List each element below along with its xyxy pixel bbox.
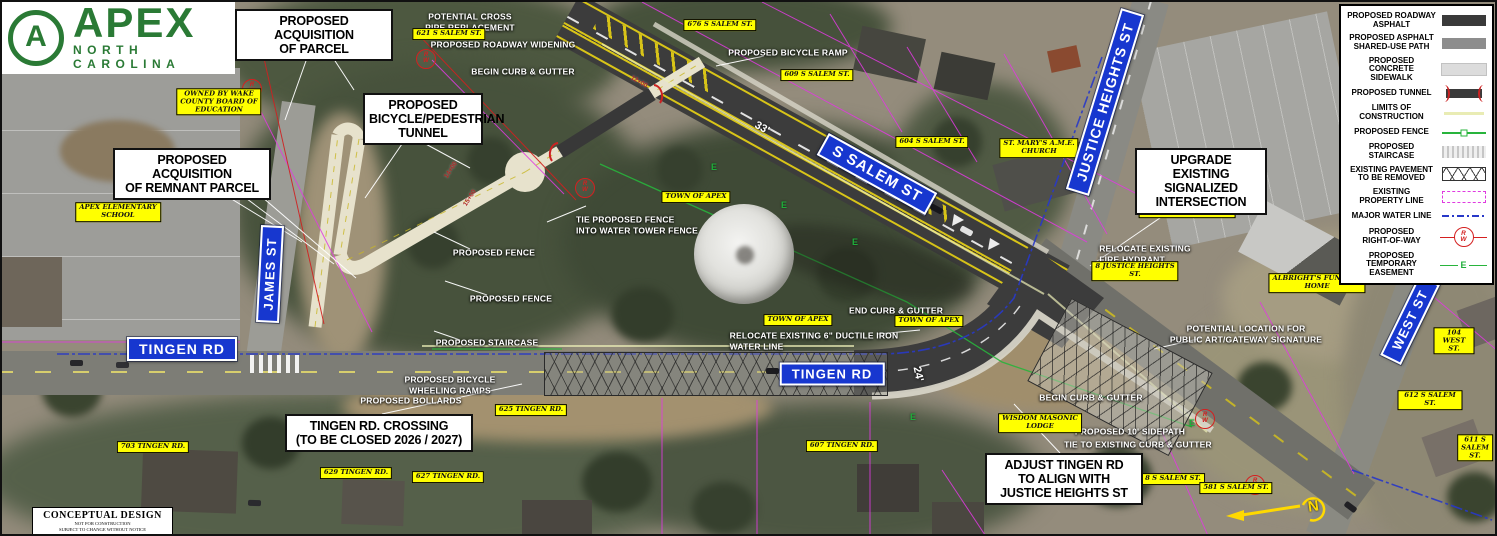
map-linework	[560, 94, 652, 152]
legend-swatch-limits-of-construction-icon	[1440, 107, 1487, 119]
callout-acquisition-of-parcel: PROPOSED ACQUISITION OF PARCEL	[235, 9, 393, 61]
street-sign-tingen-rd-west: TINGEN RD	[127, 337, 237, 361]
car	[248, 500, 261, 506]
legend-label: MAJOR WATER LINE	[1346, 212, 1437, 221]
logo-subtitle: NORTH CAROLINA	[73, 43, 229, 71]
legend-swatch-temporary-easement-icon: E	[1440, 258, 1487, 272]
map-linework	[1242, 506, 1300, 515]
callout-upgrade-signalized-intersection: UPGRADE EXISTING SIGNALIZED INTERSECTION	[1135, 148, 1267, 215]
legend-label: PROPOSED ASPHALT SHARED-USE PATH	[1346, 34, 1437, 52]
parcel-label: 8 JUSTICE HEIGHTS ST.	[1091, 261, 1178, 281]
callout-bicycle-pedestrian-tunnel: PROPOSED BICYCLE/PEDESTRIAN TUNNEL	[363, 93, 483, 145]
legend-item-concrete-sidewalk: PROPOSED CONCRETE SIDEWALK	[1346, 57, 1487, 83]
legend-swatch-concrete-sidewalk-icon	[1440, 63, 1487, 76]
note-label: BEGIN CURB & GUTTER	[1039, 393, 1142, 404]
callout-acquisition-of-remnant-parcel: PROPOSED ACQUISITION OF REMNANT PARCEL	[113, 148, 271, 200]
parcel-label: 8 S SALEM ST.	[1141, 473, 1205, 485]
legend-label: PROPOSED TUNNEL	[1346, 89, 1437, 98]
legend-swatch-right-of-way-icon: RW	[1440, 227, 1487, 247]
legend-item-roadway-asphalt: PROPOSED ROADWAY ASPHALT	[1346, 12, 1487, 30]
car	[70, 360, 83, 366]
note-label: PROPOSED FENCE	[453, 248, 535, 259]
parcel-label: TOWN OF APEX	[661, 191, 730, 203]
legend-swatch-tunnel-icon	[1440, 88, 1487, 100]
right-of-way-symbol: RW	[575, 178, 595, 198]
parcel-label: 611 S SALEM ST.	[1457, 434, 1493, 461]
note-label: PROPOSED BOLLARDS	[360, 396, 461, 407]
map-canvas: A APEX NORTH CAROLINA PROPOSED ROADWAY A…	[0, 0, 1497, 536]
parcel-label: 625 TINGEN RD.	[495, 404, 567, 416]
legend-item-water-line: MAJOR WATER LINE	[1346, 210, 1487, 222]
legend-label: PROPOSED STAIRCASE	[1346, 143, 1437, 161]
note-label: TIE PROPOSED FENCE INTO WATER TOWER FENC…	[576, 214, 698, 235]
legend-item-fence: PROPOSED FENCE	[1346, 127, 1487, 139]
note-label: PROPOSED ROADWAY WIDENING	[431, 40, 576, 51]
car	[766, 368, 779, 374]
parcel-label: WISDOM MASONIC LODGE	[998, 413, 1082, 433]
title-block-note-2: SUBJECT TO CHANGE WITHOUT NOTICE	[35, 527, 170, 533]
easement-symbol: E	[1189, 418, 1195, 428]
parcel-label: 627 TINGEN RD.	[412, 471, 484, 483]
parcel-label: 621 S SALEM ST.	[412, 28, 485, 40]
right-of-way-symbol: RW	[416, 49, 436, 69]
legend-swatch-asphalt-shared-use-path-icon	[1440, 37, 1487, 49]
apex-logo-monogram: A	[25, 22, 47, 52]
legend-swatch-property-line-icon	[1440, 191, 1487, 203]
parcel-label: TOWN OF APEX	[763, 314, 832, 326]
note-label: PROPOSED FENCE	[470, 294, 552, 305]
legend-item-temporary-easement: PROPOSED TEMPORARY EASEMENTE	[1346, 252, 1487, 278]
legend-swatch-fence-icon	[1440, 127, 1487, 139]
compass-north-label: N	[1307, 497, 1320, 515]
parcel-label: 612 S SALEM ST.	[1398, 390, 1463, 410]
title-block-title: CONCEPTUAL DESIGN	[35, 510, 170, 521]
legend-label: PROPOSED TEMPORARY EASEMENT	[1346, 252, 1437, 278]
legend-panel: PROPOSED ROADWAY ASPHALTPROPOSED ASPHALT…	[1339, 4, 1494, 285]
note-label: PROPOSED 10' SIDEPATH	[1075, 427, 1185, 438]
callout-tingen-rd-crossing: TINGEN RD. CROSSING (TO BE CLOSED 2026 /…	[285, 414, 473, 452]
note-label: POTENTIAL LOCATION FOR PUBLIC ART/GATEWA…	[1170, 323, 1322, 344]
legend-item-tunnel: PROPOSED TUNNEL	[1346, 88, 1487, 100]
easement-symbol: E	[781, 200, 787, 210]
legend-label: EXISTING PAVEMENT TO BE REMOVED	[1346, 166, 1437, 184]
parcel-label: 581 S SALEM ST.	[1199, 482, 1272, 494]
legend-item-staircase: PROPOSED STAIRCASE	[1346, 143, 1487, 161]
parcel-label: 607 TINGEN RD.	[806, 440, 878, 452]
right-of-way-symbol: RW	[1195, 409, 1215, 429]
legend-items: PROPOSED ROADWAY ASPHALTPROPOSED ASPHALT…	[1346, 12, 1487, 278]
parcel-label: TOWN OF APEX	[894, 315, 963, 327]
parcel-label: 629 TINGEN RD.	[320, 467, 392, 479]
parcel-label: 604 S SALEM ST.	[895, 136, 968, 148]
note-label: PROPOSED BICYCLE WHEELING RAMPS	[404, 374, 495, 395]
map-linework	[988, 238, 1000, 250]
note-label: PROPOSED STAIRCASE	[436, 338, 539, 349]
legend-item-limits-of-construction: LIMITS OF CONSTRUCTION	[1346, 104, 1487, 122]
parcel-label: 703 TINGEN RD.	[117, 441, 189, 453]
legend-swatch-roadway-asphalt-icon	[1440, 15, 1487, 27]
water-tower	[694, 204, 794, 304]
map-linework	[952, 214, 964, 226]
map-linework	[1352, 470, 1492, 520]
legend-swatch-staircase-icon	[1440, 146, 1487, 158]
easement-symbol: E	[711, 162, 717, 172]
legend-item-right-of-way: PROPOSED RIGHT-OF-WAYRW	[1346, 227, 1487, 247]
note-label: RELOCATE EXISTING 6" DUCTILE IRON WATER …	[730, 330, 899, 351]
logo-title: APEX	[73, 5, 229, 41]
note-label: BEGIN CURB & GUTTER	[471, 67, 574, 78]
town-logo: A APEX NORTH CAROLINA	[2, 2, 235, 74]
easement-symbol: E	[910, 412, 916, 422]
map-linework	[1226, 510, 1244, 521]
legend-swatch-pavement-removed-icon	[1440, 167, 1487, 181]
parcel-label: 104 WEST ST.	[1434, 327, 1475, 354]
parcel-label: OWNED BY WAKE COUNTY BOARD OF EDUCATION	[176, 88, 261, 115]
legend-item-asphalt-shared-use-path: PROPOSED ASPHALT SHARED-USE PATH	[1346, 34, 1487, 52]
parcel-label: ST. MARY'S A.M.E. CHURCH	[999, 138, 1078, 158]
map-linework	[252, 355, 297, 373]
legend-label: LIMITS OF CONSTRUCTION	[1346, 104, 1437, 122]
callout-adjust-tingen-rd: ADJUST TINGEN RD TO ALIGN WITH JUSTICE H…	[985, 453, 1143, 505]
legend-item-pavement-removed: EXISTING PAVEMENT TO BE REMOVED	[1346, 166, 1487, 184]
legend-label: EXISTING PROPERTY LINE	[1346, 188, 1437, 206]
legend-label: PROPOSED CONCRETE SIDEWALK	[1346, 57, 1437, 83]
car	[116, 362, 129, 368]
easement-symbol: E	[852, 237, 858, 247]
title-block: CONCEPTUAL DESIGN NOT FOR CONSTRUCTION S…	[32, 507, 173, 536]
legend-label: PROPOSED ROADWAY ASPHALT	[1346, 12, 1437, 30]
parcel-label: 609 S SALEM ST.	[780, 69, 853, 81]
note-label: TIE TO EXISTING CURB & GUTTER	[1064, 440, 1212, 451]
street-sign-tingen-rd-center: TINGEN RD	[780, 363, 885, 386]
legend-label: PROPOSED FENCE	[1346, 128, 1437, 137]
legend-item-property-line: EXISTING PROPERTY LINE	[1346, 188, 1487, 206]
apex-logo-text: APEX NORTH CAROLINA	[73, 5, 229, 71]
note-label: PROPOSED BICYCLE RAMP	[728, 48, 847, 59]
apex-logo-icon: A	[8, 10, 64, 66]
legend-label: PROPOSED RIGHT-OF-WAY	[1346, 228, 1437, 246]
legend-swatch-water-line-icon	[1440, 210, 1487, 222]
parcel-label: 676 S SALEM ST.	[683, 19, 756, 31]
parcel-label: APEX ELEMENTARY SCHOOL	[75, 202, 161, 222]
